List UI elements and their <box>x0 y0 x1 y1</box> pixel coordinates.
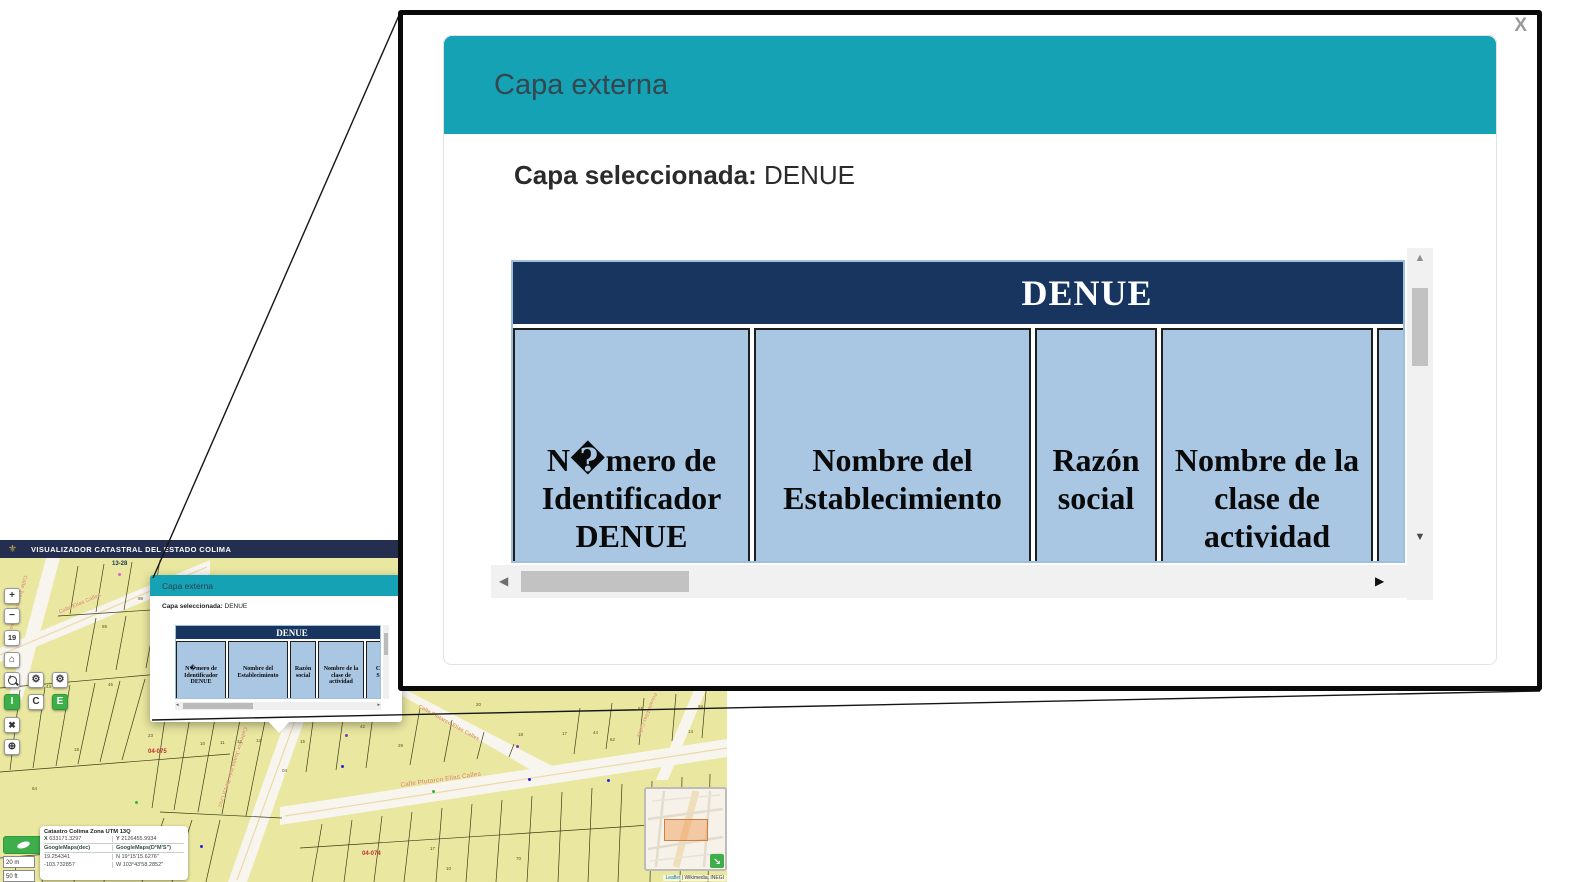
denue-point[interactable] <box>135 801 138 804</box>
minimap-toggle-button[interactable]: ↘ <box>710 854 724 868</box>
e-tool-button[interactable]: E <box>52 694 68 710</box>
basemap-button[interactable]: ⊕ <box>4 739 20 755</box>
eye-icon <box>16 840 30 850</box>
parcel-number-label: 17 <box>562 731 567 736</box>
parcel-number-label: 18 <box>74 747 79 752</box>
table-column-header: Nombre del Establecimiento <box>754 328 1031 563</box>
parcel-number-label: 42 <box>360 724 365 729</box>
table-column-header: Nombre de la clase de actividad <box>318 641 364 699</box>
denue-point[interactable] <box>607 779 610 782</box>
table-viewport[interactable]: DENUE N�mero de Identificador DENUENombr… <box>511 260 1405 563</box>
parcel-number-label: 64 <box>32 786 37 791</box>
table-columns: N�mero de Identificador DENUENombre del … <box>513 328 1403 563</box>
table-column-header: C S <box>1377 328 1405 563</box>
scale-imperial: 50 ft <box>3 870 35 882</box>
scroll-right-icon[interactable]: ▶ <box>1375 574 1384 588</box>
page: ⚜ VISUALIZADOR CATASTRAL DEL ESTADO COLI… <box>0 0 1571 882</box>
denue-point[interactable] <box>118 573 121 576</box>
scrollbar-thumb[interactable] <box>183 703 253 709</box>
home-icon: ⌂ <box>9 655 15 665</box>
coords-dms-label: GoogleMaps(D°M'S") <box>112 845 184 851</box>
app-title: VISUALIZADOR CATASTRAL DEL ESTADO COLIMA <box>31 545 231 554</box>
parcel-number-label: 18 <box>518 732 523 737</box>
arrow-down-right-icon: ↘ <box>713 856 721 867</box>
lat-dec: 19.254341 <box>44 854 112 860</box>
globe-icon: ⊕ <box>8 742 16 752</box>
zoom-box-button[interactable] <box>4 672 20 688</box>
modal-header: Capa externa <box>444 36 1496 134</box>
table-column-header: Razón social <box>1035 328 1157 563</box>
scroll-right-icon[interactable]: ▸ <box>377 702 380 708</box>
parcel-number-label: 43 <box>46 684 51 689</box>
zone-code-label: 04-074 <box>362 851 381 857</box>
denue-point[interactable] <box>516 745 519 748</box>
minimap-viewport-rect <box>664 819 708 841</box>
denue-point[interactable] <box>200 845 203 848</box>
zone-code-label: 13-28 <box>112 561 127 567</box>
table-column-header: N�mero de Identificador DENUE <box>176 641 226 699</box>
modal-title: Capa externa <box>494 69 668 102</box>
home-button[interactable]: ⌂ <box>4 652 20 668</box>
scale-panel: 20 m 50 ft <box>3 836 43 882</box>
coord-x: X 633171.3297 <box>44 836 112 842</box>
table-column-header: Nombre de la clase de actividad <box>1161 328 1373 563</box>
leaflet-link[interactable]: Leaflet <box>665 875 680 881</box>
denue-point[interactable] <box>341 765 344 768</box>
scroll-left-icon[interactable]: ◂ <box>176 702 179 708</box>
parcel-number-label: 62 <box>610 737 615 742</box>
coordinates-toggle-button[interactable] <box>3 836 43 854</box>
map-attribution: Leaflet | Wikimedia, INEGI <box>663 875 726 881</box>
vertical-scrollbar[interactable]: ▲ ▼ <box>1407 248 1433 600</box>
parcel-number-label: 98 <box>138 596 143 601</box>
parcel-number-label: 89 <box>102 624 107 629</box>
scroll-down-icon[interactable]: ▼ <box>1407 531 1433 543</box>
table-column-header: Razón social <box>290 641 316 699</box>
zone-code-label: 04-075 <box>148 749 167 755</box>
denue-point[interactable] <box>432 790 435 793</box>
parcel-number-label: 13 <box>256 738 261 743</box>
parcel-number-label: 61 <box>638 706 643 711</box>
denue-point[interactable] <box>345 734 348 737</box>
popup-small-title: Capa externa <box>162 581 213 591</box>
popup-small-table-viewport[interactable]: DENUE N�mero de Identificador DENUENombr… <box>175 625 381 699</box>
settings-button-1[interactable]: ⚙ <box>28 672 44 688</box>
lon-dec: -103.732857 <box>44 862 112 868</box>
parcel-number-label: 70 <box>516 856 521 861</box>
capa-externa-popup-small: Capa externa Capa seleccionada: DENUE DE… <box>150 575 402 722</box>
parcel-number-label: 14 <box>688 729 693 734</box>
parcel-number-label: 10 <box>446 866 451 871</box>
popup-small-selected-layer: Capa seleccionada: DENUE <box>162 603 247 610</box>
c-tool-button[interactable]: C <box>28 694 44 710</box>
scroll-up-icon[interactable]: ▲ <box>1407 252 1433 264</box>
table-column-header: C S <box>366 641 381 699</box>
scrollbar-thumb[interactable] <box>521 571 689 592</box>
gear-icon: ⚙ <box>32 675 41 685</box>
table-title: DENUE <box>513 262 1403 324</box>
info-tool-button[interactable]: I <box>4 694 20 710</box>
zoom-in-button[interactable]: + <box>4 588 20 604</box>
popup-small-horizontal-scrollbar[interactable]: ◂ ▸ <box>175 702 381 710</box>
capa-externa-modal-large: X Capa externa Capa seleccionada: DENUE … <box>398 10 1542 691</box>
coordinates-panel: Catastro Colima Zona UTM 13Q X 633171.32… <box>40 826 188 880</box>
table-column-header: Nombre del Establecimiento <box>228 641 288 699</box>
parcel-number-label: 20 <box>476 702 481 707</box>
overview-minimap[interactable]: ↘ <box>644 787 727 871</box>
tools-button[interactable]: ✖ <box>4 717 20 733</box>
crossed-tools-icon: ✖ <box>8 721 16 730</box>
popup-small-vertical-scrollbar[interactable] <box>383 625 389 699</box>
parcel-number-label: 23 <box>148 733 153 738</box>
parcel-number-label: 44 <box>593 730 598 735</box>
scrollbar-thumb[interactable] <box>1412 288 1428 366</box>
popup-small-header: Capa externa <box>150 575 402 596</box>
parcel-number-label: 15 <box>300 739 305 744</box>
colima-logo-icon: ⚜ <box>8 544 17 555</box>
denue-point[interactable] <box>528 778 531 781</box>
scrollbar-thumb[interactable] <box>384 633 388 655</box>
scroll-left-icon[interactable]: ◀ <box>499 574 508 588</box>
settings-button-2[interactable]: ⚙ <box>52 672 68 688</box>
selected-layer-line: Capa seleccionada: DENUE <box>514 160 855 191</box>
close-icon[interactable]: X <box>1514 15 1527 37</box>
parcel-number-label: 04 <box>282 768 287 773</box>
lat-dms: N 19°15'15.6276" <box>112 854 184 860</box>
parcel-number-label: 45 <box>108 682 113 687</box>
coords-dec-label: GoogleMaps(dec) <box>44 845 112 851</box>
parcel-number-label: 12 <box>237 739 242 744</box>
magnifier-icon <box>8 676 17 685</box>
zoom-level-indicator[interactable]: 19 <box>4 630 20 646</box>
coord-y: Y 2126455.9934 <box>112 836 184 842</box>
zoom-out-button[interactable]: − <box>4 608 20 624</box>
lon-dms: W 103°43'58.2852" <box>112 862 184 868</box>
parcel-number-label: 11 <box>220 740 225 745</box>
modal-card: Capa externa Capa seleccionada: DENUE DE… <box>443 35 1497 665</box>
parcel-number-label: 29 <box>398 743 403 748</box>
parcel-number-label: 10 <box>200 741 205 746</box>
horizontal-scrollbar[interactable]: ◀ ▶ <box>491 565 1407 598</box>
table-columns-small: N�mero de Identificador DENUENombre del … <box>176 641 380 699</box>
parcel-number-label: 17 <box>430 846 435 851</box>
scale-metric: 20 m <box>3 856 35 868</box>
table-title-small: DENUE <box>176 626 380 639</box>
parcel-number-label: 94 <box>698 704 703 709</box>
table-column-header: N�mero de Identificador DENUE <box>513 328 750 563</box>
gear-icon: ⚙ <box>56 675 65 685</box>
